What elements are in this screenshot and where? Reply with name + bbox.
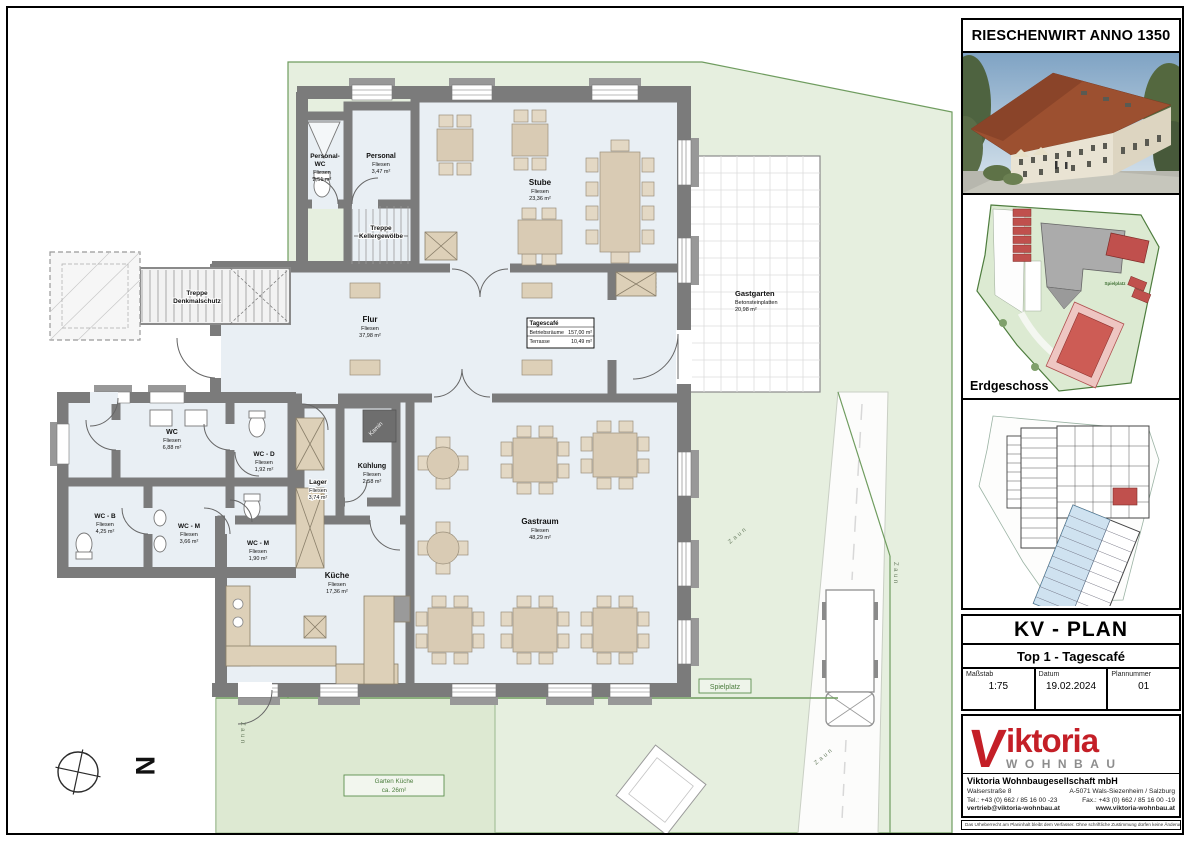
svg-text:20,98 m²: 20,98 m² <box>735 307 757 313</box>
svg-text:23,36 m²: 23,36 m² <box>529 196 551 202</box>
copyright-fineprint: Das Urheberrecht am Planinhalt bleibt de… <box>961 820 1181 830</box>
label-kueche: Küche <box>325 571 350 580</box>
garten-kueche-label: Garten Küche ca. 26m² <box>344 775 444 796</box>
svg-text:WC: WC <box>315 161 326 168</box>
svg-text:Fliesen: Fliesen <box>255 460 273 466</box>
site-plan-image: Spielplatz <box>963 195 1179 396</box>
svg-text:Fliesen: Fliesen <box>531 528 549 534</box>
svg-text:Fliesen: Fliesen <box>313 170 331 176</box>
svg-text:Betriebsräume: Betriebsräume <box>530 330 564 336</box>
svg-text:3,74 m²: 3,74 m² <box>309 495 328 501</box>
svg-text:4,25 m²: 4,25 m² <box>96 529 115 535</box>
label-wc-d: WC - D <box>253 451 275 458</box>
plan-subtitle-box: Top 1 - Tagescafé <box>961 645 1181 669</box>
room-vestibule <box>64 398 116 482</box>
viktoria-logo-wordmark: WOHNBAU <box>1006 757 1123 771</box>
svg-text:Kellergewölbe: Kellergewölbe <box>359 233 403 240</box>
siteplan-spielplatz-label: Spielplatz <box>1104 281 1126 286</box>
meta-date-label: Datum <box>1036 669 1107 678</box>
viktoria-logo-v-icon: V <box>967 727 1008 771</box>
meta-scale-label: Maßstab <box>963 669 1034 678</box>
zaun-label: Zaun <box>239 722 245 746</box>
label-wc-b: WC - B <box>94 513 116 520</box>
svg-text:2,58 m²: 2,58 m² <box>363 479 382 485</box>
viktoria-logo: V iktoria WOHNBAU <box>963 716 1179 773</box>
label-gastgarten: Gastgarten <box>735 289 775 298</box>
key-plan-thumbnail <box>961 400 1181 610</box>
svg-text:37,98 m²: 37,98 m² <box>359 333 381 339</box>
zaun-label: Zaun <box>892 562 898 586</box>
svg-text:48,29 m²: 48,29 m² <box>529 535 551 541</box>
svg-text:Fliesen: Fliesen <box>163 438 181 444</box>
label-gastraum: Gastraum <box>521 517 558 526</box>
label-wc-m2: WC - M <box>247 540 269 547</box>
svg-text:Fliesen: Fliesen <box>249 549 267 555</box>
svg-text:Fliesen: Fliesen <box>309 488 327 494</box>
building-rendering <box>961 53 1181 195</box>
north-symbol: N <box>51 745 160 800</box>
svg-text:Fliesen: Fliesen <box>372 162 390 168</box>
rendering-image <box>963 53 1179 193</box>
company-tel: Tel.: +43 (0) 662 / 85 16 00 -23 <box>967 797 1057 806</box>
svg-text:Terrasse: Terrasse <box>530 339 550 345</box>
meta-number-value: 01 <box>1108 681 1179 692</box>
svg-text:3,66 m²: 3,66 m² <box>180 539 199 545</box>
company-city: A-5071 Wals-Siezenheim / Salzburg <box>1069 788 1175 797</box>
site-plan-thumbnail: Spielplatz Erdgeschoss <box>961 195 1181 400</box>
spielplatz-label: Spielplatz <box>699 679 751 693</box>
svg-text:17,36 m²: 17,36 m² <box>326 589 348 595</box>
floor-label: Erdgeschoss <box>970 379 1049 393</box>
svg-text:Fliesen: Fliesen <box>363 472 381 478</box>
meta-number-cell: Plannummer 01 <box>1108 669 1179 709</box>
svg-text:Fliesen: Fliesen <box>328 582 346 588</box>
label-treppe-keller: Treppe <box>370 225 392 232</box>
svg-text:Denkmalschutz: Denkmalschutz <box>173 298 221 305</box>
north-letter: N <box>130 756 160 776</box>
svg-text:Spielplatz: Spielplatz <box>710 684 741 691</box>
company-street: Walserstraße 8 <box>967 788 1011 797</box>
svg-text:Fliesen: Fliesen <box>96 522 114 528</box>
svg-text:6,88 m²: 6,88 m² <box>163 445 182 451</box>
kamin-block: Kamin <box>363 410 396 442</box>
company-block: V iktoria WOHNBAU Viktoria Wohnbaugesell… <box>961 714 1181 818</box>
plan-subtitle: Top 1 - Tagescafé <box>1017 649 1125 664</box>
svg-text:Garten Küche: Garten Küche <box>375 778 414 785</box>
title-block-panel: RIESCHENWIRT ANNO 1350 <box>961 18 1181 830</box>
svg-text:2,51 m²: 2,51 m² <box>313 177 332 183</box>
svg-text:1,92 m²: 1,92 m² <box>255 467 274 473</box>
svg-text:10,49 m²: 10,49 m² <box>571 339 592 345</box>
plan-sheet: Kamin <box>6 6 1184 835</box>
label-wc: WC <box>166 429 178 436</box>
company-fax: Fax.: +43 (0) 662 / 85 16 00 -19 <box>1082 797 1175 806</box>
meta-number-label: Plannummer <box>1108 669 1179 678</box>
svg-text:1,90 m²: 1,90 m² <box>249 556 268 562</box>
meta-date-cell: Datum 19.02.2024 <box>1036 669 1109 709</box>
company-web: www.viktoria-wohnbau.at <box>1096 805 1175 814</box>
company-details: Viktoria Wohnbaugesellschaft mbH Walsers… <box>963 773 1179 816</box>
tagescafe-info-box: Tagescafé Betriebsräume 157,00 m² Terras… <box>527 318 594 348</box>
label-stube: Stube <box>529 178 552 187</box>
svg-text:3,47 m²: 3,47 m² <box>372 169 391 175</box>
stairs-denkmalschutz <box>140 268 290 324</box>
label-lager: Lager <box>309 479 327 486</box>
denkmalschutz-structure <box>50 252 140 340</box>
meta-scale-value: 1:75 <box>963 681 1034 692</box>
project-title: RIESCHENWIRT ANNO 1350 <box>972 28 1171 44</box>
meta-date-value: 19.02.2024 <box>1036 681 1107 692</box>
meta-scale-cell: Maßstab 1:75 <box>963 669 1036 709</box>
svg-text:ca. 26m²: ca. 26m² <box>382 787 407 794</box>
label-wc-m: WC - M <box>178 523 200 530</box>
company-email: vertrieb@viktoria-wohnbau.at <box>967 805 1060 814</box>
truck-graphic <box>822 590 878 726</box>
label-flur: Flur <box>362 315 377 324</box>
label-kuehlung: Kühlung <box>358 463 386 470</box>
gastgarten-terrace <box>688 156 820 392</box>
svg-text:Betonsteinplatten: Betonsteinplatten <box>735 300 778 306</box>
plan-meta-table: Maßstab 1:75 Datum 19.02.2024 Plannummer… <box>961 669 1181 711</box>
label-treppe-denkmal: Treppe <box>186 290 208 297</box>
svg-text:Tagescafé: Tagescafé <box>530 321 560 327</box>
svg-text:Fliesen: Fliesen <box>180 532 198 538</box>
plan-type: KV - PLAN <box>1014 618 1128 642</box>
plan-type-box: KV - PLAN <box>961 614 1181 645</box>
svg-text:Fliesen: Fliesen <box>361 326 379 332</box>
label-personal: Personal <box>366 153 396 160</box>
svg-text:157,00 m²: 157,00 m² <box>568 330 592 336</box>
key-plan-image <box>963 400 1179 606</box>
svg-text:Fliesen: Fliesen <box>531 189 549 195</box>
project-title-box: RIESCHENWIRT ANNO 1350 <box>961 18 1181 53</box>
viktoria-logo-name: iktoria <box>1006 727 1123 755</box>
label-personal-wc: Personal- <box>310 153 340 160</box>
